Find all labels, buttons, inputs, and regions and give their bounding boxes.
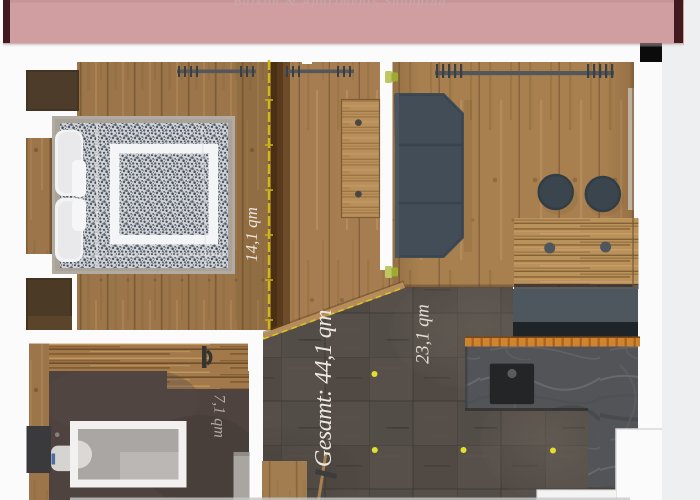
svg-text:7,1 qm: 7,1 qm bbox=[211, 394, 228, 438]
svg-text:Balkon & Apartments Shopping: Balkon & Apartments Shopping bbox=[233, 0, 447, 9]
svg-text:23,1 qm: 23,1 qm bbox=[414, 304, 434, 364]
svg-text:14,1 qm: 14,1 qm bbox=[242, 207, 261, 262]
svg-text:Gesamt: 44,1 qm: Gesamt: 44,1 qm bbox=[311, 310, 337, 467]
